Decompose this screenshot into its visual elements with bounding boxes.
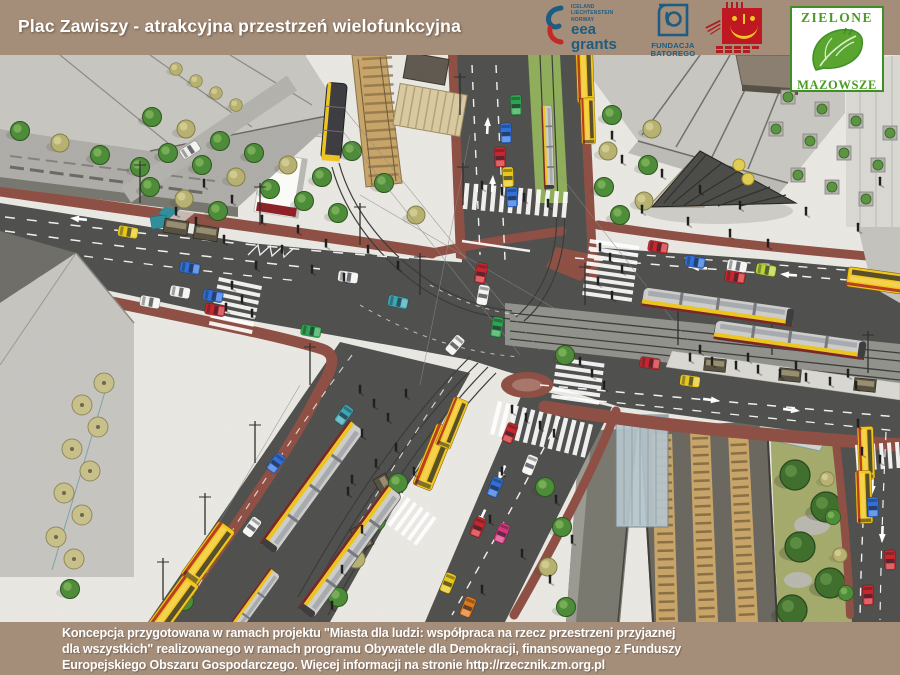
zielone-mazowsze-logo: ZIELONE MAZOWSZE [790, 6, 884, 92]
page-title: Plac Zawiszy - atrakcyjna przestrzeń wie… [18, 16, 461, 37]
header-bar: Plac Zawiszy - atrakcyjna przestrzeń wie… [0, 0, 900, 55]
logo-caption-illegible [716, 46, 762, 53]
aerial-visualization [0, 55, 900, 622]
presentation-slide: Plac Zawiszy - atrakcyjna przestrzeń wie… [0, 0, 900, 675]
red-swoosh-icon [704, 16, 722, 38]
eea-swoosh-icon [545, 4, 567, 48]
eea-countries-label: ICELAND LIECHTENSTEIN NORWAY [571, 4, 617, 23]
red-foundation-logo [704, 2, 762, 54]
footer-credit-text: Koncepcja przygotowana w ramach projektu… [62, 626, 681, 674]
batory-symbol-icon [655, 3, 691, 37]
footer-bar: Koncepcja przygotowana w ramach projektu… [0, 622, 900, 675]
mazowsze-label: MAZOWSZE [792, 79, 882, 93]
zielone-label: ZIELONE [792, 10, 882, 26]
leaf-icon [806, 26, 868, 74]
texture-overlay [0, 55, 900, 622]
eea-name-line2: grants [571, 37, 617, 52]
eea-grants-logo: ICELAND LIECHTENSTEIN NORWAY eea grants [545, 4, 641, 52]
eea-name-line1: eea [571, 23, 617, 37]
batory-name-label: FUNDACJA BATOREGO [645, 42, 701, 59]
batory-foundation-logo: FUNDACJA BATOREGO [645, 3, 701, 59]
red-smiley-icon [722, 8, 762, 44]
